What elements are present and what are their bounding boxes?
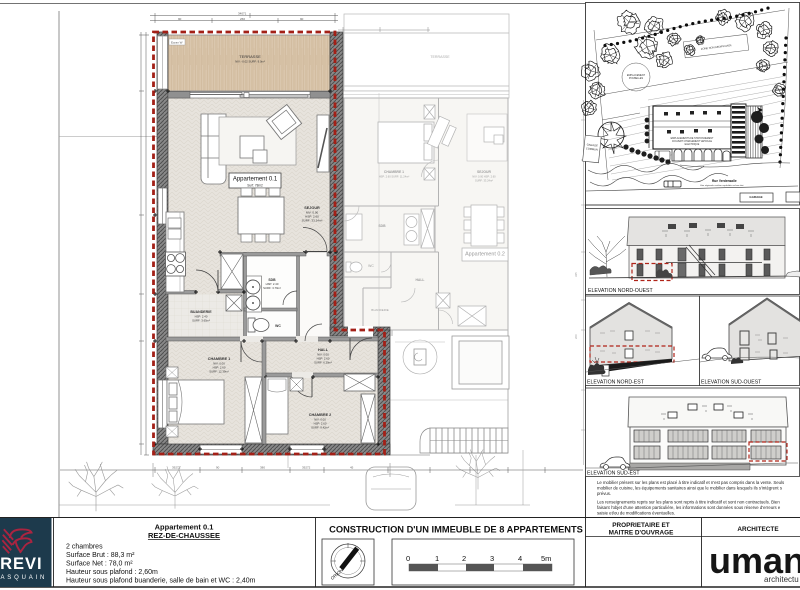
svg-text:PROPRIETAIRE ET: PROPRIETAIRE ET (612, 522, 669, 529)
svg-text:CONSTRUCTION D'UN IMMEUBLE DE: CONSTRUCTION D'UN IMMEUBLE DE 8 APPARTEM… (329, 525, 583, 535)
svg-text:SURF: 33.24m²: SURF: 33.24m² (302, 219, 323, 223)
svg-text:TREVI: TREVI (0, 555, 43, 573)
svg-text:Hauteur sous plafond : 2,60m: Hauteur sous plafond : 2,60m (66, 569, 158, 576)
svg-text:Hauteur sous plafond buanderie: Hauteur sous plafond buanderie, salle de… (66, 578, 256, 585)
svg-text:5m: 5m (541, 554, 551, 563)
svg-text:ELEVATION SUD-OUEST: ELEVATION SUD-OUEST (701, 380, 762, 386)
svg-text:SEJOUR: SEJOUR (304, 206, 320, 210)
svg-text:90: 90 (178, 17, 182, 21)
svg-text:Surface Brut : 88,3 m²: Surface Brut : 88,3 m² (66, 552, 135, 559)
svg-text:ELECTRIQUE: ELECTRIQUE (685, 144, 700, 146)
svg-text:34071: 34071 (238, 12, 247, 16)
svg-text:mobilier de cuisine, les équip: mobilier de cuisine, les équipements san… (597, 486, 782, 491)
svg-text:Ecran W: Ecran W (171, 41, 183, 45)
svg-text:NIV: 0.00 HSP: 2.60: NIV: 0.00 HSP: 2.60 (472, 175, 496, 179)
svg-text:SURF: 9.42m²: SURF: 9.42m² (311, 426, 329, 430)
svg-text:0: 0 (406, 554, 410, 563)
svg-text:SEJOUR: SEJOUR (477, 170, 491, 174)
svg-text:SURF: 6.29m²: SURF: 6.29m² (314, 361, 332, 365)
svg-text:prévus.: prévus. (597, 491, 611, 496)
svg-text:Voie régionale revêtue asphalt: Voie régionale revêtue asphaltée en bon … (700, 184, 744, 187)
svg-text:Surf: 78m2: Surf: 78m2 (247, 184, 263, 188)
svg-text:4: 4 (518, 554, 522, 563)
svg-text:HALL: HALL (318, 348, 329, 352)
svg-text:ASQUAIN: ASQUAIN (1, 575, 48, 581)
svg-text:90: 90 (216, 466, 220, 470)
svg-text:39272: 39272 (302, 466, 311, 470)
svg-text:Appartement 0.1: Appartement 0.1 (233, 177, 278, 183)
svg-text:faisant l'objet d'une attentio: faisant l'objet d'une attention particul… (597, 505, 781, 510)
svg-text:TERRASSE: TERRASSE (430, 55, 450, 59)
svg-text:Surface Net : 78,0 m²: Surface Net : 78,0 m² (66, 561, 133, 568)
svg-text:Le mobilier présent sur les pl: Le mobilier présent sur les plans est pl… (597, 480, 784, 485)
svg-text:Appartement 0.2: Appartement 0.2 (465, 252, 505, 258)
svg-text:45: 45 (350, 466, 354, 470)
svg-text:GARAGE: GARAGE (749, 195, 762, 199)
svg-text:CHAMBRE 1: CHAMBRE 1 (208, 357, 231, 361)
svg-text:ARCHITECTE: ARCHITECTE (737, 526, 779, 533)
svg-text:EMPLACEMENTS DE STATIONNEMENT: EMPLACEMENTS DE STATIONNEMENT (671, 137, 714, 140)
svg-text:BUANDERIE: BUANDERIE (371, 308, 389, 312)
svg-text:NIV: -0.02 SURF: 9.0m²: NIV: -0.02 SURF: 9.0m² (235, 60, 265, 64)
svg-text:345: 345 (574, 272, 578, 277)
svg-text:1: 1 (435, 554, 439, 563)
svg-text:260: 260 (240, 17, 245, 21)
svg-text:TERRASSE: TERRASSE (239, 54, 261, 59)
svg-text:SURF: 12.39m²: SURF: 12.39m² (209, 370, 228, 374)
svg-text:architectu: architectu (764, 575, 799, 584)
svg-text:SURF: 3.65m²: SURF: 3.65m² (192, 319, 210, 323)
svg-text:BUANDERIE: BUANDERIE (190, 310, 212, 314)
svg-text:ELEVATION NORD-EST: ELEVATION NORD-EST (587, 380, 645, 386)
svg-text:Les renseignements repris sur: Les renseignements repris sur les plans … (597, 500, 780, 505)
svg-text:COUVERT CHARGEMENT VEHICULE: COUVERT CHARGEMENT VEHICULE (672, 140, 713, 143)
svg-text:saisie et/ou de modifications: saisie et/ou de modifications éventuelle… (597, 511, 675, 516)
svg-text:260: 260 (574, 334, 578, 339)
svg-text:CHAMBRE 2: CHAMBRE 2 (309, 413, 332, 417)
svg-text:CHAMBRE 1: CHAMBRE 1 (384, 170, 404, 174)
svg-text:WC: WC (368, 264, 374, 268)
svg-text:HALL: HALL (415, 278, 424, 282)
svg-text:90: 90 (300, 17, 304, 21)
svg-text:SURF: 33.24m²: SURF: 33.24m² (475, 179, 493, 183)
svg-text:WC: WC (275, 324, 281, 328)
svg-text:380: 380 (260, 466, 265, 470)
svg-text:2 chambres: 2 chambres (66, 544, 103, 551)
svg-text:REZ-DE-CHAUSSEE: REZ-DE-CHAUSSEE (148, 531, 220, 540)
svg-text:MAITRE D'OUVRAGE: MAITRE D'OUVRAGE (609, 530, 674, 537)
svg-text:SDB: SDB (378, 224, 386, 228)
svg-text:3: 3 (490, 554, 494, 563)
svg-text:POUBELLES: POUBELLES (629, 77, 644, 80)
svg-text:ELEVATION NORD-OUEST: ELEVATION NORD-OUEST (588, 288, 653, 294)
svg-text:HSP: 2.60 SURF: 11.24m²: HSP: 2.60 SURF: 11.24m² (379, 175, 410, 179)
svg-text:Rue Verdensalle: Rue Verdensalle (712, 179, 737, 183)
svg-text:ELEVATION SUD-EST: ELEVATION SUD-EST (587, 471, 640, 477)
svg-text:2: 2 (462, 554, 466, 563)
svg-text:SURF: 3.79m²: SURF: 3.79m² (263, 286, 281, 290)
